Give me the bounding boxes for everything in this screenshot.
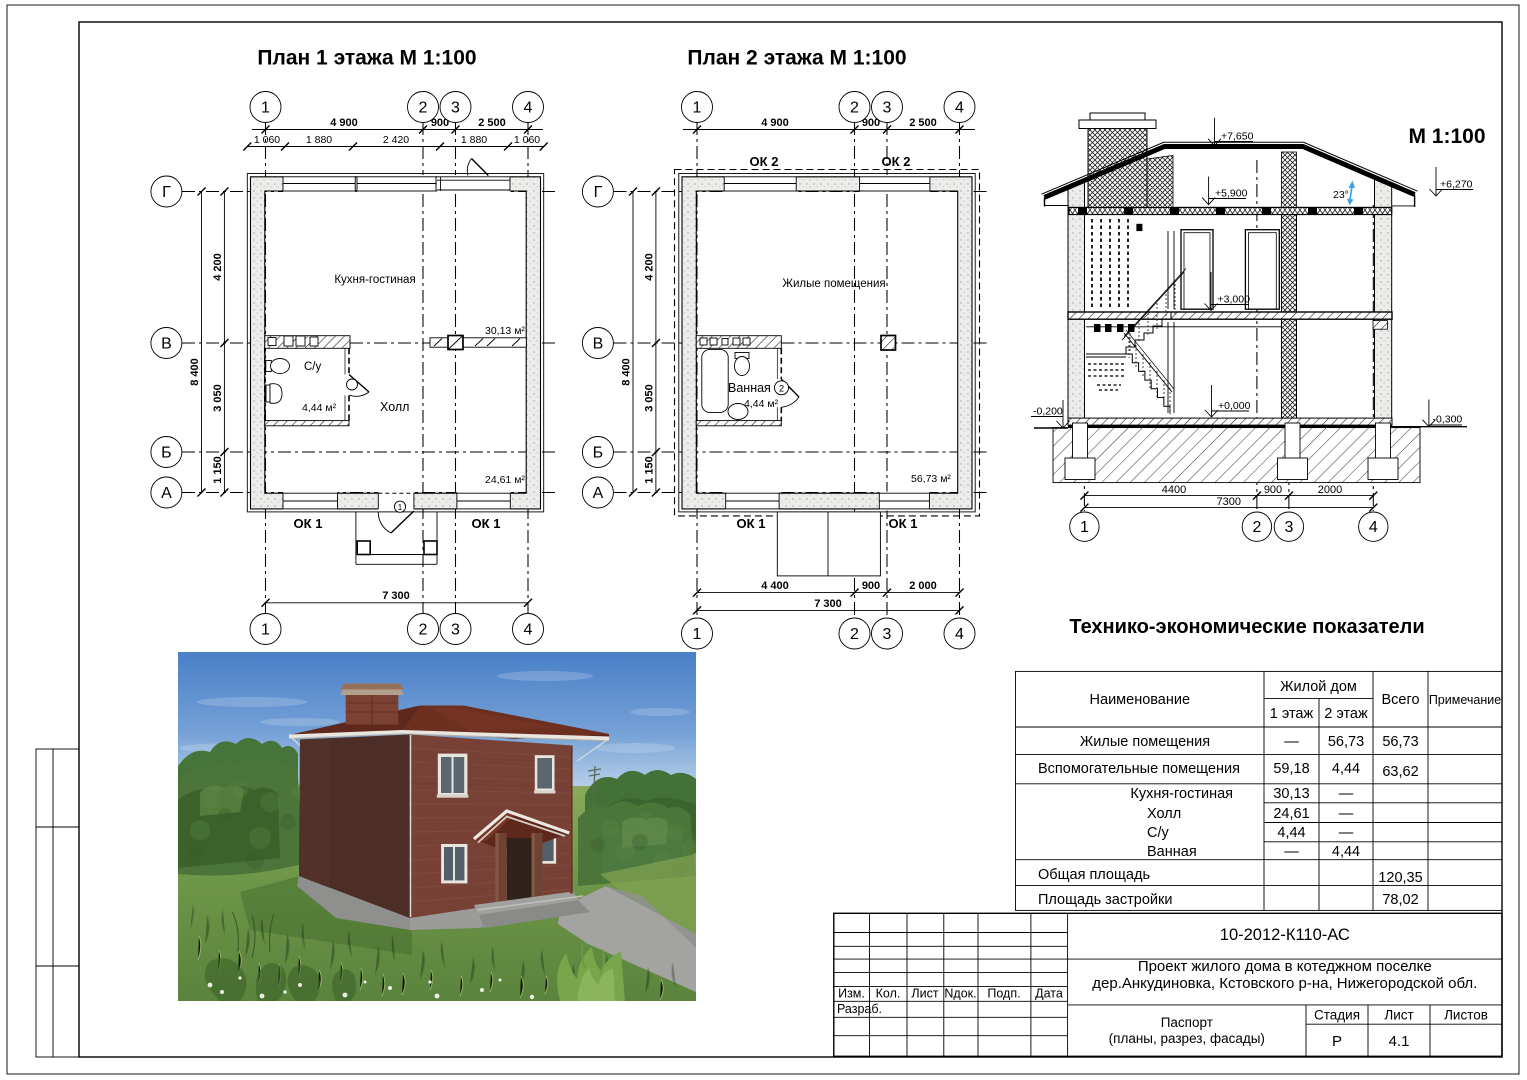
svg-text:Б: Б — [593, 445, 604, 462]
svg-text:Nдок.: Nдок. — [944, 987, 976, 1001]
svg-text:4.1: 4.1 — [1389, 1033, 1410, 1050]
svg-text:2: 2 — [1252, 519, 1261, 536]
svg-text:3: 3 — [451, 100, 460, 117]
svg-text:Жилой дом: Жилой дом — [1280, 679, 1357, 695]
svg-text:-0,300: -0,300 — [1433, 414, 1463, 426]
svg-text:4: 4 — [524, 622, 533, 639]
svg-text:План 2 этажа М 1:100: План 2 этажа М 1:100 — [687, 47, 906, 70]
svg-text:М 1:100: М 1:100 — [1408, 125, 1485, 148]
svg-text:—: — — [1339, 806, 1354, 822]
svg-text:1: 1 — [261, 100, 270, 117]
svg-text:1: 1 — [261, 622, 270, 639]
svg-text:7 300: 7 300 — [382, 590, 410, 602]
svg-text:С/у: С/у — [304, 361, 322, 373]
svg-text:30,13: 30,13 — [1273, 786, 1309, 802]
svg-text:1: 1 — [693, 100, 702, 117]
svg-text:В: В — [593, 336, 604, 353]
svg-text:2 этаж: 2 этаж — [1324, 706, 1368, 722]
svg-text:ОК 1: ОК 1 — [294, 516, 323, 531]
svg-text:4,44 м²: 4,44 м² — [302, 402, 337, 414]
svg-text:4400: 4400 — [1162, 484, 1186, 496]
svg-text:8 400: 8 400 — [189, 358, 201, 386]
svg-text:Проект жилого дома в котеджном: Проект жилого дома в котеджном поселке — [1138, 958, 1432, 975]
svg-text:+5,900: +5,900 — [1215, 188, 1248, 200]
svg-text:2: 2 — [779, 384, 784, 395]
svg-text:Изм.: Изм. — [838, 987, 865, 1001]
svg-text:30,13 м²: 30,13 м² — [485, 325, 525, 337]
svg-text:ОК 1: ОК 1 — [472, 516, 501, 531]
svg-text:1 880: 1 880 — [461, 134, 487, 146]
svg-text:2 000: 2 000 — [909, 580, 937, 592]
svg-text:+6,270: +6,270 — [1440, 179, 1473, 191]
svg-text:3: 3 — [883, 100, 892, 117]
svg-text:3: 3 — [883, 626, 892, 643]
svg-text:Всего: Всего — [1381, 692, 1419, 708]
svg-text:2 500: 2 500 — [909, 117, 937, 129]
svg-text:2: 2 — [419, 622, 428, 639]
svg-text:10-2012-К110-АС: 10-2012-К110-АС — [1220, 926, 1350, 944]
svg-text:4,44: 4,44 — [1332, 761, 1360, 777]
svg-text:900: 900 — [1264, 484, 1282, 496]
svg-text:Листов: Листов — [1444, 1008, 1488, 1023]
svg-text:Р: Р — [1332, 1033, 1342, 1050]
svg-text:Кухня-гостиная: Кухня-гостиная — [1130, 786, 1233, 802]
svg-text:Лист: Лист — [911, 987, 938, 1001]
svg-text:+3,000: +3,000 — [1218, 294, 1251, 306]
svg-text:3: 3 — [451, 622, 460, 639]
svg-text:4: 4 — [955, 626, 964, 643]
svg-text:4 200: 4 200 — [644, 253, 656, 281]
svg-text:Г: Г — [594, 184, 603, 201]
svg-text:2 500: 2 500 — [478, 117, 506, 129]
svg-text:1 150: 1 150 — [644, 456, 656, 484]
svg-text:Ванная: Ванная — [728, 381, 771, 395]
svg-text:56,73: 56,73 — [1382, 734, 1418, 750]
svg-text:Холл: Холл — [1147, 806, 1181, 822]
svg-text:(планы, разрез, фасады): (планы, разрез, фасады) — [1109, 1031, 1265, 1046]
svg-text:Паспорт: Паспорт — [1161, 1015, 1213, 1030]
svg-text:Вспомогательные помещения: Вспомогательные помещения — [1038, 761, 1240, 777]
svg-text:А: А — [161, 485, 172, 502]
svg-text:А: А — [593, 485, 604, 502]
svg-text:1 150: 1 150 — [212, 456, 224, 484]
svg-text:Подп.: Подп. — [987, 987, 1020, 1001]
svg-text:1: 1 — [1080, 519, 1089, 536]
svg-text:План 1 этажа М 1:100: План 1 этажа М 1:100 — [257, 47, 476, 70]
svg-text:1 880: 1 880 — [306, 134, 332, 146]
svg-text:4 900: 4 900 — [761, 117, 789, 129]
svg-text:Площадь застройки: Площадь застройки — [1038, 892, 1172, 908]
svg-text:Г: Г — [162, 184, 171, 201]
svg-text:59,18: 59,18 — [1273, 761, 1309, 777]
svg-text:-0,200: -0,200 — [1033, 406, 1063, 418]
svg-text:3 050: 3 050 — [644, 384, 656, 412]
svg-text:Общая площадь: Общая площадь — [1038, 867, 1150, 883]
svg-text:—: — — [1339, 786, 1354, 802]
svg-text:Кухня-гостиная: Кухня-гостиная — [334, 274, 415, 286]
svg-text:2: 2 — [850, 626, 859, 643]
svg-text:56,73: 56,73 — [1328, 734, 1364, 750]
svg-text:78,02: 78,02 — [1382, 892, 1418, 908]
svg-text:7 300: 7 300 — [814, 598, 842, 610]
svg-text:ОК 2: ОК 2 — [882, 154, 911, 169]
svg-text:—: — — [1284, 734, 1299, 750]
svg-text:дер.Анкудиновка, Кстовского р-: дер.Анкудиновка, Кстовского р-на, Нижего… — [1092, 975, 1477, 992]
svg-text:ОК 1: ОК 1 — [889, 516, 918, 531]
svg-text:Кол.: Кол. — [876, 987, 901, 1001]
svg-text:Дата: Дата — [1035, 987, 1063, 1001]
svg-text:4 900: 4 900 — [330, 117, 358, 129]
svg-text:Разраб.: Разраб. — [837, 1002, 882, 1016]
svg-text:1: 1 — [398, 503, 403, 512]
svg-text:4 400: 4 400 — [761, 580, 789, 592]
svg-text:Примечание: Примечание — [1429, 693, 1501, 707]
svg-text:2: 2 — [419, 100, 428, 117]
svg-text:Стадия: Стадия — [1314, 1008, 1360, 1023]
svg-text:63,62: 63,62 — [1382, 764, 1418, 780]
svg-text:1 060: 1 060 — [254, 134, 280, 146]
svg-text:2 420: 2 420 — [383, 134, 409, 146]
svg-text:4: 4 — [524, 100, 533, 117]
svg-text:+0,000: +0,000 — [1218, 400, 1251, 412]
svg-text:120,35: 120,35 — [1378, 870, 1422, 886]
svg-text:Лист: Лист — [1384, 1008, 1413, 1023]
svg-text:С/у: С/у — [1147, 825, 1170, 841]
svg-text:1: 1 — [693, 626, 702, 643]
svg-text:Наименование: Наименование — [1090, 692, 1191, 708]
svg-text:4,44: 4,44 — [1332, 844, 1360, 860]
svg-text:3: 3 — [1284, 519, 1293, 536]
svg-text:В: В — [161, 336, 172, 353]
svg-text:23°: 23° — [1333, 189, 1349, 201]
svg-text:Холл: Холл — [380, 400, 409, 414]
svg-text:2: 2 — [850, 100, 859, 117]
svg-text:—: — — [1284, 844, 1299, 860]
svg-text:1 060: 1 060 — [514, 134, 540, 146]
svg-text:4: 4 — [955, 100, 964, 117]
svg-text:Технико-экономические показате: Технико-экономические показатели — [1069, 616, 1424, 638]
svg-text:Б: Б — [161, 445, 172, 462]
svg-text:Жилые помещения: Жилые помещения — [782, 278, 885, 290]
svg-text:4: 4 — [1369, 519, 1378, 536]
svg-text:8 400: 8 400 — [621, 358, 633, 386]
svg-text:7300: 7300 — [1217, 496, 1241, 508]
svg-text:Ванная: Ванная — [1147, 844, 1197, 860]
svg-text:ОК 2: ОК 2 — [750, 154, 779, 169]
svg-text:1 этаж: 1 этаж — [1270, 706, 1314, 722]
svg-text:900: 900 — [862, 580, 880, 592]
svg-text:—: — — [1339, 825, 1354, 841]
svg-text:+7,650: +7,650 — [1221, 131, 1254, 143]
svg-text:ОК 1: ОК 1 — [737, 516, 766, 531]
svg-text:56,73 м²: 56,73 м² — [911, 473, 951, 485]
svg-text:24,61 м²: 24,61 м² — [485, 474, 525, 486]
svg-text:3 050: 3 050 — [212, 384, 224, 412]
svg-text:4,44: 4,44 — [1277, 825, 1305, 841]
svg-text:24,61: 24,61 — [1273, 806, 1309, 822]
svg-text:4,44 м²: 4,44 м² — [744, 398, 779, 410]
svg-text:2000: 2000 — [1318, 484, 1342, 496]
svg-text:4 200: 4 200 — [212, 253, 224, 281]
svg-text:Жилые помещения: Жилые помещения — [1080, 734, 1210, 750]
